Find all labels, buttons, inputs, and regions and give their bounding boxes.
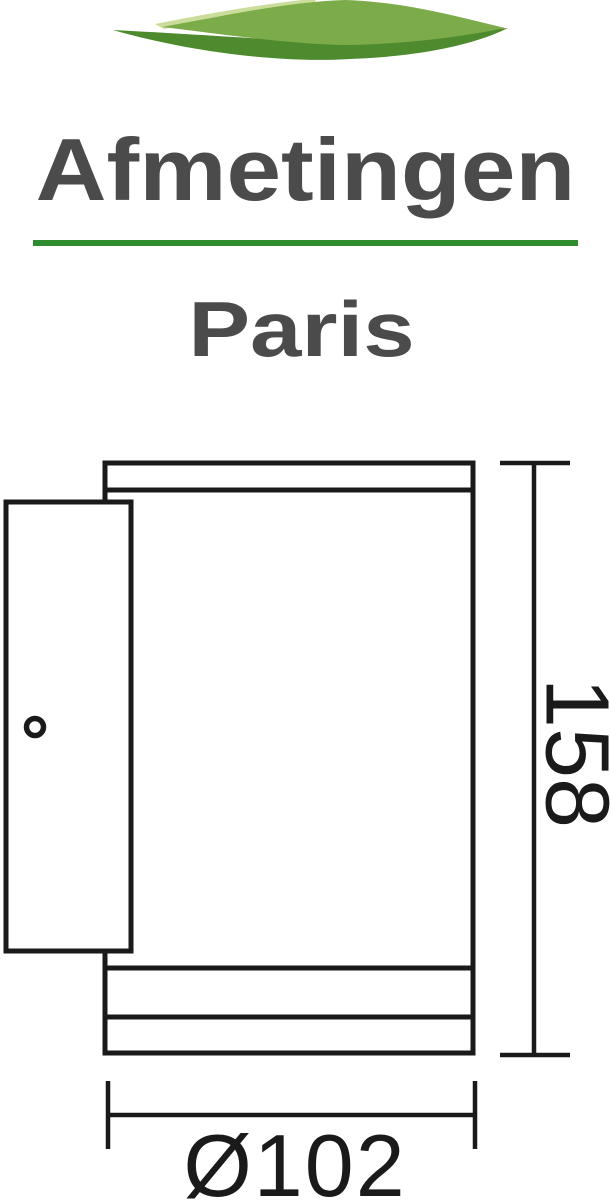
svg-text:Ø102: Ø102 [183,1116,406,1200]
svg-text:158: 158 [527,678,611,828]
